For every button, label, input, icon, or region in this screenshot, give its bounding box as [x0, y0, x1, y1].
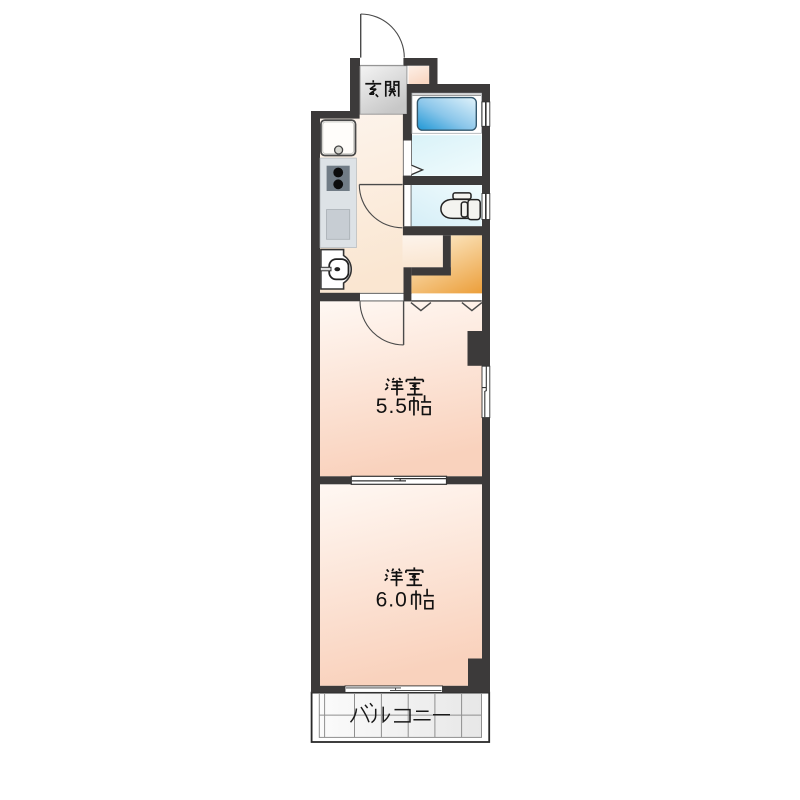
svg-text:5.5: 5.5: [376, 395, 408, 418]
svg-text:6.0: 6.0: [376, 588, 408, 611]
